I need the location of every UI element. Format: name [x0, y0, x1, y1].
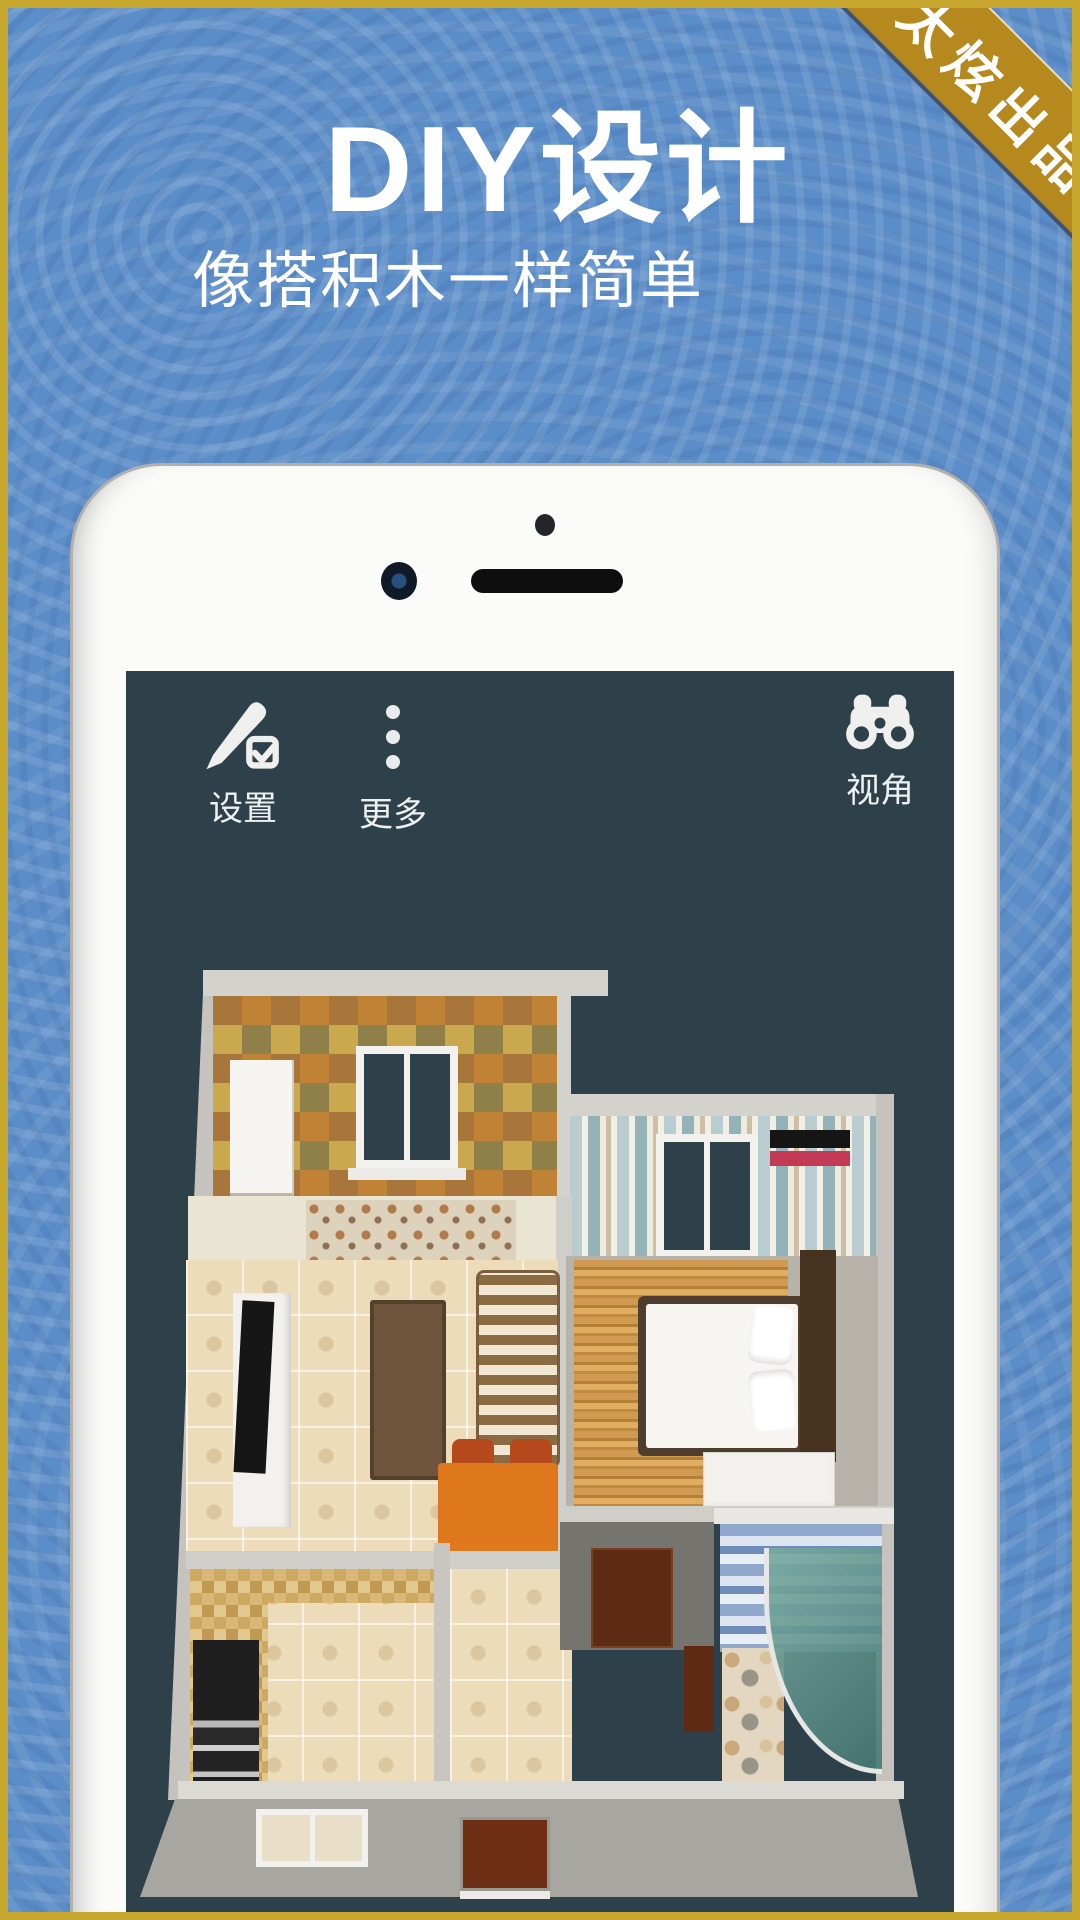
poster-title: DIY设计 — [8, 70, 1080, 247]
app-store-promo-poster: 太炫出品 DIY设计 像搭积木一样简单 设置 更多 — [0, 0, 1080, 1920]
kitchen-stove — [193, 1640, 259, 1786]
kitchen-hall-divider-wall — [434, 1543, 450, 1787]
phone-speaker — [471, 569, 623, 593]
kitchen-window — [356, 1046, 458, 1168]
bathroom-top-cap — [714, 1508, 894, 1524]
hallway-floor — [450, 1569, 572, 1787]
coffee-table — [370, 1300, 446, 1480]
front-door-threshold — [460, 1891, 550, 1899]
kitchen-fridge — [230, 1060, 294, 1196]
bed — [638, 1296, 806, 1456]
bed-pillow — [747, 1368, 798, 1432]
front-wall-top-face — [178, 1781, 904, 1799]
phone-mockup: 设置 更多 视角 — [70, 463, 1000, 1920]
bedroom-ac-unit — [770, 1130, 850, 1148]
floorplan-3d-view[interactable] — [126, 671, 954, 1920]
phone-front-camera — [381, 562, 417, 600]
kitchen-window-sill — [348, 1168, 466, 1180]
closet-side-panel — [684, 1646, 714, 1732]
living-room-floral-panel — [306, 1200, 516, 1260]
bedroom-wall-top-cap — [566, 1094, 892, 1116]
wardrobe — [591, 1548, 673, 1648]
phone-sensor-dot — [535, 514, 555, 536]
bed-pillow — [747, 1304, 797, 1366]
poster-subtitle: 像搭积木一样简单 — [0, 230, 1078, 320]
front-door — [460, 1817, 550, 1891]
living-kitchen-divider-wall — [186, 1551, 572, 1569]
bedroom-ac-unit-body — [770, 1151, 850, 1166]
kitchen-wall-top-cap — [203, 970, 608, 996]
bedroom-dresser — [703, 1452, 835, 1514]
front-window — [256, 1809, 368, 1867]
app-screen: 设置 更多 视角 — [126, 671, 954, 1920]
bedroom-window — [656, 1134, 758, 1258]
bed-headboard — [800, 1250, 836, 1462]
